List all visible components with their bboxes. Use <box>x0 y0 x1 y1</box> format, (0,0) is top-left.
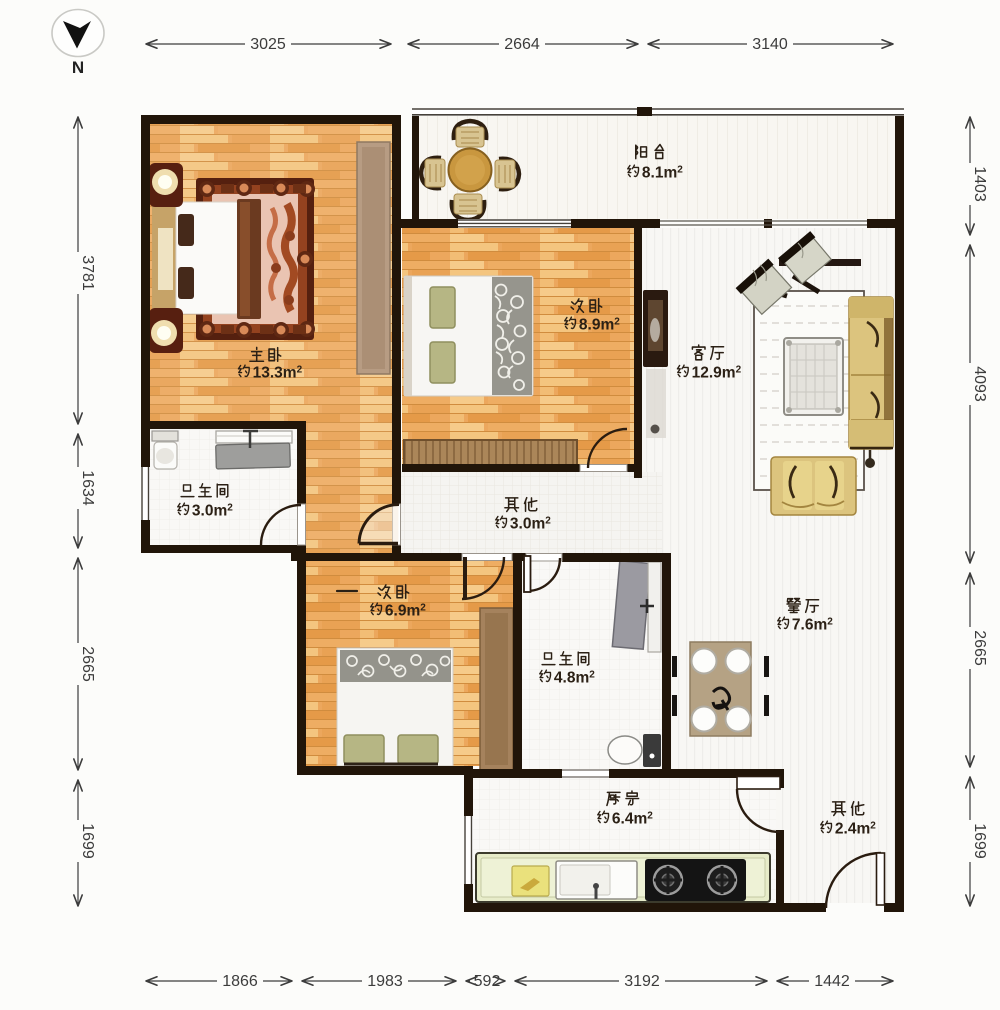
svg-text:3781: 3781 <box>79 255 96 291</box>
svg-text:592: 592 <box>474 973 501 990</box>
svg-text:1983: 1983 <box>367 973 403 990</box>
svg-text:13.3m2: 13.3m2 <box>253 365 303 382</box>
svg-text:8.1m2: 8.1m2 <box>642 165 683 182</box>
svg-text:6.9m2: 6.9m2 <box>385 603 426 620</box>
svg-text:1403: 1403 <box>971 166 988 202</box>
svg-text:4093: 4093 <box>971 366 988 402</box>
svg-text:2664: 2664 <box>504 36 540 53</box>
svg-text:2.4m2: 2.4m2 <box>835 821 876 838</box>
svg-text:1699: 1699 <box>971 823 988 859</box>
svg-text:3.0m2: 3.0m2 <box>510 516 551 533</box>
svg-text:3140: 3140 <box>752 36 788 53</box>
svg-text:3192: 3192 <box>624 973 660 990</box>
svg-text:7.6m2: 7.6m2 <box>792 617 833 634</box>
svg-text:3.0m2: 3.0m2 <box>192 503 233 520</box>
svg-text:4.8m2: 4.8m2 <box>554 670 595 687</box>
svg-text:3025: 3025 <box>250 36 286 53</box>
svg-text:6.4m2: 6.4m2 <box>612 811 653 828</box>
svg-text:2665: 2665 <box>971 630 988 666</box>
svg-text:8.9m2: 8.9m2 <box>579 317 620 334</box>
svg-text:1699: 1699 <box>79 823 96 859</box>
svg-text:1442: 1442 <box>814 973 850 990</box>
svg-text:2665: 2665 <box>79 646 96 682</box>
svg-text:12.9m2: 12.9m2 <box>692 365 742 382</box>
svg-text:1634: 1634 <box>79 470 96 506</box>
svg-text:N: N <box>72 58 84 77</box>
svg-text:1866: 1866 <box>222 973 258 990</box>
